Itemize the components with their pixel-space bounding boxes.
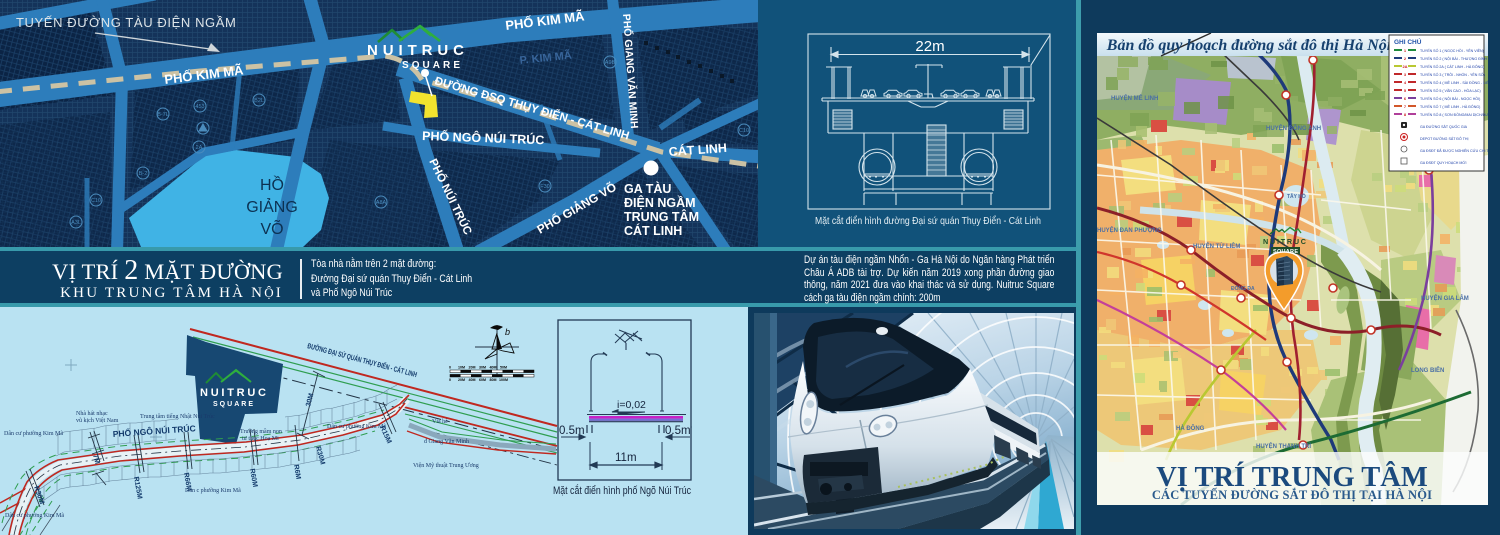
svg-text:NUITRUC: NUITRUC — [367, 42, 468, 59]
svg-text:Nhà hát nhạc: Nhà hát nhạc — [76, 411, 108, 417]
svg-text:2A: 2A — [1402, 64, 1407, 69]
svg-text:TUYẾN ĐƯỜNG TÀU ĐIỆN NGẦM: TUYẾN ĐƯỜNG TÀU ĐIỆN NGẦM — [16, 15, 236, 30]
svg-text:HUYỆN ĐÔNG ANH: HUYỆN ĐÔNG ANH — [1266, 124, 1321, 132]
svg-text:50M: 50M — [500, 366, 507, 370]
svg-text:40M: 40M — [490, 366, 497, 370]
svg-text:GA ĐSĐT QUY HOẠCH MỚI: GA ĐSĐT QUY HOẠCH MỚI — [1420, 160, 1466, 165]
svg-text:R125M: R125M — [132, 476, 143, 500]
svg-text:TUYẾN SỐ 6 ( NỘI BÀI - NGỌC HỒ: TUYẾN SỐ 6 ( NỘI BÀI - NGỌC HỒI) — [1420, 96, 1480, 101]
svg-text:GA TÀU: GA TÀU — [624, 181, 671, 196]
svg-text:F30: F30 — [540, 184, 549, 190]
svg-text:2A: 2A — [196, 145, 203, 151]
svg-text:R6M: R6M — [292, 464, 301, 480]
svg-text:Dân c phường Kim Mã: Dân c phường Kim Mã — [185, 488, 241, 494]
svg-text:Trung tâm tiếng Nhật Núi Trúc: Trung tâm tiếng Nhật Núi Trúc — [140, 413, 215, 420]
svg-text:A8A: A8A — [376, 200, 387, 206]
svg-text:TUYẾN SỐ 5 ( VĂN CAO - HÒA LẠC: TUYẾN SỐ 5 ( VĂN CAO - HÒA LẠC) — [1420, 88, 1481, 93]
svg-text:Dân cư phường Kim Mã: Dân cư phường Kim Mã — [327, 424, 386, 430]
svg-text:i=0,02: i=0,02 — [617, 399, 646, 411]
svg-text:HUYỆN GIA LÂM: HUYỆN GIA LÂM — [1421, 294, 1469, 302]
svg-text:C10: C10 — [739, 128, 749, 134]
svg-text:CÁC TUYẾN ĐƯỜNG SẮT ĐÔ THỊ TẠI: CÁC TUYẾN ĐƯỜNG SẮT ĐÔ THỊ TẠI HÀ NỘI — [1152, 487, 1432, 502]
svg-text:B-7L: B-7L — [157, 112, 169, 118]
svg-text:R30M: R30M — [314, 446, 326, 466]
svg-text:GIẢNG: GIẢNG — [246, 197, 298, 216]
svg-text:Dân cư phường Kim Mã: Dân cư phường Kim Mã — [5, 513, 64, 519]
svg-text:TÂY HỒ: TÂY HỒ — [1287, 193, 1306, 200]
svg-text:60M: 60M — [479, 378, 486, 382]
svg-text:ĐỐNG ĐA: ĐỐNG ĐA — [1231, 285, 1255, 292]
svg-text:HUYỆN THANH TRÌ: HUYỆN THANH TRÌ — [1256, 442, 1311, 450]
svg-text:0: 0 — [449, 378, 451, 382]
svg-text:Mặt cắt điển hình phố Ngõ Núi: Mặt cắt điển hình phố Ngõ Núi Trúc — [553, 484, 691, 497]
svg-text:40M: 40M — [469, 378, 476, 382]
svg-text:Viện Mỹ thuật Trung Ương: Viện Mỹ thuật Trung Ương — [413, 462, 479, 469]
svg-text:HUYỆN ĐAN PHƯỢNG: HUYỆN ĐAN PHƯỢNG — [1097, 226, 1162, 234]
svg-text:NUITRUC: NUITRUC — [1263, 237, 1307, 246]
svg-text:tư thục Hoạ Mi: tư thục Hoạ Mi — [242, 436, 279, 442]
svg-text:100M: 100M — [499, 378, 508, 382]
svg-text:10M: 10M — [458, 366, 465, 370]
svg-text:A3L: A3L — [71, 220, 81, 226]
svg-text:30M: 30M — [305, 392, 315, 407]
svg-text:11m: 11m — [615, 452, 637, 464]
svg-text:80M: 80M — [490, 378, 497, 382]
svg-text:B-2: B-2 — [139, 171, 148, 177]
svg-text:B2L: B2L — [254, 98, 264, 104]
svg-text:NUITRUC: NUITRUC — [200, 387, 268, 399]
svg-text:SQUARE: SQUARE — [402, 60, 463, 71]
svg-text:Vỉa hè: Vỉa hè — [432, 419, 448, 425]
svg-text:0.5m: 0.5m — [665, 425, 691, 437]
svg-text:GA ĐSĐT ĐÃ ĐƯỢC NGHIÊN CỨU CHI: GA ĐSĐT ĐÃ ĐƯỢC NGHIÊN CỨU CHI TIẾT — [1420, 148, 1495, 153]
svg-text:C10: C10 — [91, 198, 101, 204]
svg-text:b: b — [505, 327, 510, 337]
svg-text:GA ĐƯỜNG SẮT QUỐC GIA: GA ĐƯỜNG SẮT QUỐC GIA — [1420, 124, 1468, 129]
svg-text:30M: 30M — [479, 366, 486, 370]
svg-text:DEPOT ĐƯỜNG SẮT ĐÔ THỊ: DEPOT ĐƯỜNG SẮT ĐÔ THỊ — [1420, 136, 1468, 141]
svg-text:VÕ: VÕ — [260, 218, 283, 238]
svg-text:Trường mầm non: Trường mầm non — [240, 428, 282, 435]
svg-text:HỒ: HỒ — [260, 175, 284, 194]
svg-text:Dân cư phường Kim Mã: Dân cư phường Kim Mã — [4, 431, 63, 437]
svg-text:TUYẾN SỐ 2 ( NỘI BÀI - THƯỢNG: TUYẾN SỐ 2 ( NỘI BÀI - THƯỢNG ĐÌNH - BƯỞ… — [1420, 56, 1500, 61]
svg-text:TRUNG TÂM: TRUNG TÂM — [624, 209, 699, 224]
svg-text:CÁT LINH: CÁT LINH — [624, 223, 682, 238]
svg-text:0.5m: 0.5m — [559, 425, 585, 437]
svg-text:Bản đồ quy hoạch đường sắt đô: Bản đồ quy hoạch đường sắt đô thị Hà Nội — [1106, 37, 1392, 54]
svg-text:GHI CHÚ: GHI CHÚ — [1394, 37, 1422, 46]
svg-text:SQUARE: SQUARE — [213, 401, 255, 408]
svg-text:TUYẾN SỐ 1 ( NGỌC HỒI - YÊN VI: TUYẾN SỐ 1 ( NGỌC HỒI - YÊN VIÊN) — [1420, 48, 1484, 53]
svg-text:TUYẾN SỐ 8 ( SƠN ĐỒNG/MAI DỊCH: TUYẾN SỐ 8 ( SƠN ĐỒNG/MAI DỊCH/DƯƠNG XÁ) — [1420, 112, 1500, 117]
svg-text:LONG BIÊN: LONG BIÊN — [1411, 366, 1444, 374]
svg-text:HUYỆN TỪ LIÊM: HUYỆN TỪ LIÊM — [1193, 242, 1240, 250]
svg-text:20M: 20M — [469, 366, 476, 370]
svg-text:0: 0 — [449, 366, 451, 370]
svg-text:TUYẾN SỐ 2A ( CÁT LINH - HÀ ĐÔ: TUYẾN SỐ 2A ( CÁT LINH - HÀ ĐÔNG) — [1420, 64, 1484, 69]
svg-text:22m: 22m — [915, 38, 944, 55]
svg-text:TUYẾN SỐ 7 ( MÊ LINH - HÀ ĐÔNG: TUYẾN SỐ 7 ( MÊ LINH - HÀ ĐÔNG) — [1420, 104, 1480, 109]
svg-text:R60M: R60M — [248, 468, 258, 488]
svg-text:TUYẾN SỐ 3 ( TRÔI - NHỔN - YÊN: TUYẾN SỐ 3 ( TRÔI - NHỔN - YÊN SỞ) — [1420, 72, 1485, 77]
svg-text:Mặt cắt điển hình đường Đại sứ: Mặt cắt điển hình đường Đại sứ quán Thụy… — [815, 214, 1041, 227]
svg-text:đ Giang Văn Minh: đ Giang Văn Minh — [424, 439, 469, 445]
svg-text:HÀ ĐÔNG: HÀ ĐÔNG — [1176, 424, 1205, 432]
svg-text:A9B: A9B — [605, 60, 616, 66]
svg-text:ĐIỆN NGẦM: ĐIỆN NGẦM — [624, 195, 696, 210]
svg-text:20M: 20M — [458, 378, 465, 382]
svg-text:TUYẾN SỐ 4 ( MÊ LINH - SÀI ĐỒN: TUYẾN SỐ 4 ( MÊ LINH - SÀI ĐỒNG - LIÊN H… — [1420, 80, 1498, 85]
svg-text:453: 453 — [195, 104, 204, 110]
svg-text:vũ kịch Việt Nam: vũ kịch Việt Nam — [76, 418, 119, 424]
svg-text:HUYỆN MÊ LINH: HUYỆN MÊ LINH — [1111, 94, 1158, 102]
